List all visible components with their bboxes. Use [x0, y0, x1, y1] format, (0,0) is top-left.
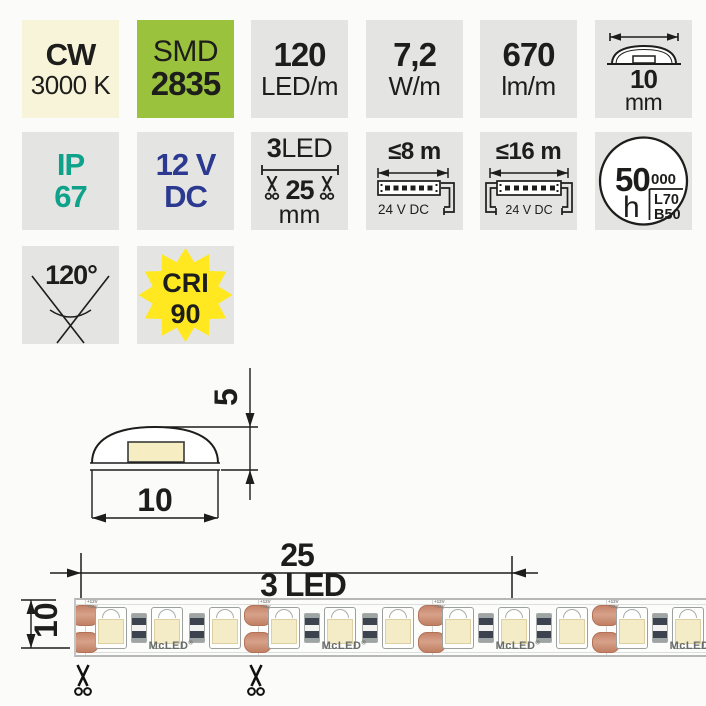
led-chip	[209, 607, 241, 649]
max-run-value: ≤16 m	[496, 140, 561, 165]
resistor-body	[190, 631, 204, 638]
cut-dimension-line	[260, 164, 340, 176]
badge-lifetime: 50 000 h L70 B50	[595, 132, 692, 230]
led-strip-datasheet: CW 3000 K SMD 2835 120 LED/m 7,2 W/m 670…	[0, 0, 706, 706]
ip-value: 67	[54, 181, 86, 213]
resistor	[478, 613, 494, 643]
resistor	[189, 613, 205, 643]
badge-chip-type: SMD 2835	[137, 20, 234, 118]
cri-starburst-icon: CRI 90	[137, 246, 234, 344]
strip-profile-icon	[602, 25, 686, 67]
lifetime-zeros: 000	[651, 171, 676, 188]
resistor-body	[537, 618, 551, 625]
brand-print: McLED®	[664, 640, 706, 652]
cut-pitch-unit: mm	[279, 202, 321, 228]
cri-value: 90	[170, 299, 200, 329]
led-dome	[331, 609, 349, 618]
led-dome	[102, 609, 120, 618]
badge-strip-width: 10 mm	[595, 20, 692, 118]
voltage-value: 12 V	[156, 149, 216, 181]
badge-cut-length: 3LED 25 mm	[251, 132, 348, 230]
led-emitter	[619, 619, 645, 644]
color-temp-kelvin: 3000 K	[31, 72, 110, 99]
scissors-icon	[319, 176, 335, 203]
resistor	[131, 613, 147, 643]
cri-label: CRI	[162, 268, 209, 298]
resistor-body	[363, 618, 377, 625]
led-chip	[616, 607, 648, 649]
resistor	[362, 613, 378, 643]
ip-label: IP	[57, 149, 84, 181]
voltage-type: DC	[164, 181, 207, 213]
resistor-body	[132, 631, 146, 638]
lifetime-b50: B50	[654, 207, 681, 223]
color-temp-code: CW	[46, 39, 96, 71]
resistor-body	[537, 631, 551, 638]
led-emitter	[98, 619, 124, 644]
led-dome	[623, 609, 641, 618]
resistor	[536, 613, 552, 643]
max-run-diagram: 24 V DC	[484, 166, 574, 222]
cross-section-width-dim: 10	[137, 482, 173, 518]
led-emitter	[385, 619, 411, 644]
led-emitter	[212, 619, 238, 644]
led-emitter	[559, 619, 585, 644]
supply-voltage-label: 24 V DC	[505, 203, 552, 217]
resistor-body	[305, 618, 319, 625]
led-chip	[556, 607, 588, 649]
supply-voltage-label: 24 V DC	[378, 202, 429, 217]
max-run-value: ≤8 m	[388, 140, 441, 165]
led-dome	[505, 609, 523, 618]
resistor-body	[653, 618, 667, 625]
lifetime-l70: L70	[654, 192, 679, 208]
flux-unit: lm/m	[501, 73, 555, 100]
badge-voltage: 12 V DC	[137, 132, 234, 230]
lifetime-unit: h	[623, 191, 640, 224]
lifetime-circle-icon: 50 000 h L70 B50	[595, 132, 692, 230]
chip-type-label: SMD	[153, 36, 218, 67]
resistor-body	[479, 618, 493, 625]
cross-section-led-chip	[128, 442, 184, 462]
badge-luminous-flux: 670 lm/m	[480, 20, 577, 118]
led-dome	[158, 609, 176, 618]
resistor-body	[190, 618, 204, 625]
led-chip	[268, 607, 300, 649]
power-value: 7,2	[393, 38, 436, 72]
led-strip-top-view: +12V+12VMcLED®+12V+12VMcLED®+12V+12VMcLE…	[74, 598, 706, 657]
scissors-icon	[75, 665, 91, 695]
cut-pitch-value: 25	[285, 176, 313, 204]
brand-print: McLED®	[143, 640, 199, 652]
led-emitter	[271, 619, 297, 644]
scissors-icon	[248, 665, 264, 695]
led-chip	[442, 607, 474, 649]
led-dome	[275, 609, 293, 618]
badge-ip-rating: IP 67	[22, 132, 119, 230]
brand-print: McLED®	[490, 640, 546, 652]
badge-max-run-8m: ≤8 m 24 V DC	[366, 132, 463, 230]
cut-led-count: 3LED	[267, 134, 333, 162]
badge-max-run-16m: ≤16 m 24 V DC	[480, 132, 577, 230]
resistor-body	[305, 631, 319, 638]
power-unit: W/m	[389, 73, 441, 100]
brand-print: McLED®	[316, 640, 372, 652]
cross-section-height-dim: 5	[208, 388, 244, 406]
max-run-diagram: 24 V DC	[370, 166, 460, 222]
resistor-body	[132, 618, 146, 625]
cross-section-pcb	[90, 463, 220, 470]
led-dome	[449, 609, 467, 618]
led-dome	[389, 609, 407, 618]
led-dome	[216, 609, 234, 618]
resistor-body	[479, 631, 493, 638]
badge-color-temperature: CW 3000 K	[22, 20, 119, 118]
badge-led-density: 120 LED/m	[251, 20, 348, 118]
resistor	[652, 613, 668, 643]
led-dome	[563, 609, 581, 618]
resistor-body	[363, 631, 377, 638]
badge-cri: CRI 90	[137, 246, 234, 344]
resistor-body	[653, 631, 667, 638]
led-emitter	[445, 619, 471, 644]
scissors-icon	[264, 176, 280, 203]
strip-width-value: 10	[630, 67, 657, 91]
flux-value: 670	[502, 38, 554, 72]
strip-width-unit: mm	[625, 91, 662, 114]
beam-angle-value: 120°	[45, 260, 97, 290]
chip-type-size: 2835	[151, 67, 220, 101]
strip-width-dim: 10	[28, 602, 64, 638]
led-density-unit: LED/m	[261, 73, 338, 100]
led-density-value: 120	[273, 38, 325, 72]
resistor	[304, 613, 320, 643]
beam-angle-icon: 120°	[22, 246, 119, 344]
badge-beam-angle: 120°	[22, 246, 119, 344]
led-chip	[95, 607, 127, 649]
led-chip	[382, 607, 414, 649]
led-dome	[679, 609, 697, 618]
badge-power: 7,2 W/m	[366, 20, 463, 118]
